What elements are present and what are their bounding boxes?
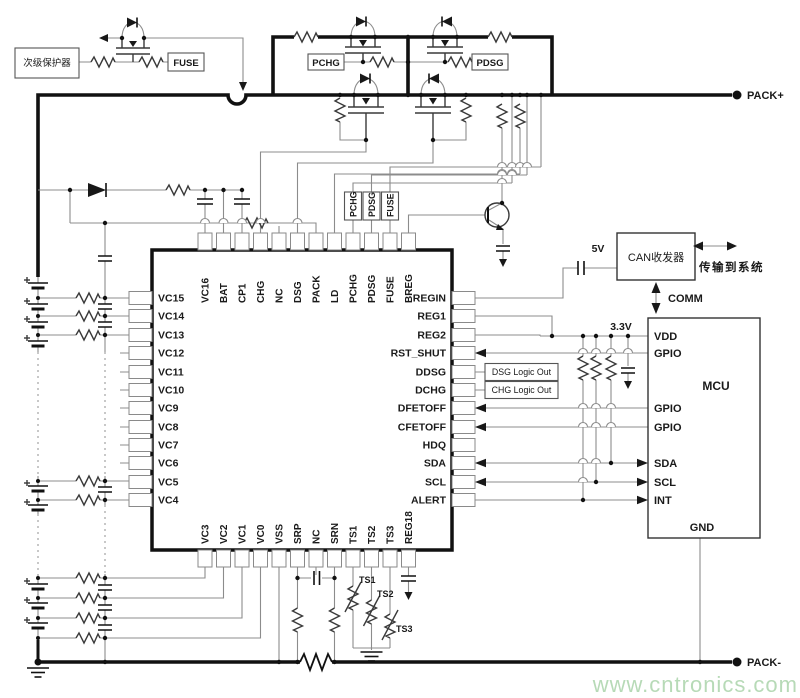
mcu-pin-sda: SDA [654, 458, 677, 470]
pack-negative-rail [38, 640, 732, 670]
pin-label: NC [312, 530, 323, 544]
pin-label: VSS [275, 524, 286, 544]
gate-box-pchg: PCHG [349, 191, 359, 217]
power-labels: 5V 3.3V PACK+ PACK- [592, 90, 784, 669]
ground-icon [27, 668, 49, 677]
pin-label: VC2 [219, 524, 230, 544]
pin-label: PACK [312, 275, 323, 303]
diode-icon [88, 183, 106, 197]
pin-label: VC1 [238, 524, 249, 544]
pin-label: VC11 [158, 367, 184, 379]
pchg-box-label: PCHG [312, 58, 339, 69]
pack-minus-label: PACK- [747, 657, 781, 669]
pin-label: LD [330, 290, 341, 303]
pin-label: VC16 [201, 278, 212, 303]
pdsg-box-label: PDSG [477, 58, 504, 69]
shunt-resistor [300, 654, 332, 670]
pin-label: HDQ [423, 440, 446, 452]
pin-label: REG2 [417, 330, 446, 342]
mcu-pin-scl: SCL [654, 477, 676, 489]
pin-label: SRN [330, 523, 341, 544]
pin-label: SDA [424, 458, 447, 470]
protector-label: 次级保护器 [23, 57, 71, 69]
pin-label: RST_SHUT [391, 348, 447, 360]
pin-label: SRP [293, 523, 304, 544]
pin-label: CFETOFF [398, 422, 447, 434]
mcu-pin-int: INT [654, 495, 672, 507]
ts1-label: TS1 [359, 575, 376, 585]
pin-label: VC10 [158, 385, 184, 397]
bms-schematic: 次级保护器 FUSE PCHG PDSG PCHG PDSG FUSE VC16… [0, 0, 800, 698]
can-label: CAN收发器 [628, 250, 684, 264]
dsg-logic-out-label: DSG Logic Out [492, 367, 552, 377]
thermistor-labels: TS1 TS2 TS3 [359, 575, 413, 634]
fuse-box-label: FUSE [173, 58, 198, 69]
pin-label: TS1 [349, 525, 360, 544]
ground-icon [361, 652, 383, 661]
pin-label: VC13 [158, 330, 184, 342]
mcu-pin-gpio: GPIO [654, 348, 682, 360]
pin-label: VC7 [158, 440, 179, 452]
pin-label: VC15 [158, 293, 184, 305]
logic-out: DSG Logic Out CHG Logic Out [485, 364, 558, 399]
pack-minus-terminal [733, 658, 742, 667]
mcu-name: MCU [702, 379, 729, 393]
pin-label: ALERT [411, 495, 447, 507]
mcu-block: VDD GPIO GPIO GPIO SDA SCL INT MCU GND [648, 318, 760, 538]
ts2-label: TS2 [377, 589, 394, 599]
pin-label: VC6 [158, 458, 179, 470]
pack-plus-label: PACK+ [747, 90, 784, 102]
pin-label: VC0 [256, 524, 267, 544]
secondary-protector: 次级保护器 FUSE [15, 48, 204, 78]
pin-label: TS3 [386, 525, 397, 544]
chg-logic-out-label: CHG Logic Out [492, 385, 552, 395]
fet-network [88, 17, 510, 268]
pin-label: PDSG [367, 274, 378, 303]
pin-label: FUSE [386, 276, 397, 303]
pin-label: VC14 [158, 311, 184, 323]
pin-label: VC4 [158, 495, 179, 507]
mcu-pin-vdd: VDD [654, 331, 677, 343]
rail-5v-label: 5V [592, 243, 605, 255]
pin-label: REGIN [413, 293, 446, 305]
pin-label: VC12 [158, 348, 184, 360]
pin-label: REG18 [404, 511, 415, 544]
gate-box-fuse: FUSE [386, 193, 396, 217]
gate-box-pdsg: PDSG [367, 192, 377, 217]
pin-label: SCL [425, 477, 447, 489]
ts3-label: TS3 [396, 624, 413, 634]
pin-label: VC3 [201, 524, 212, 544]
schematic-canvas: 次级保护器 FUSE PCHG PDSG PCHG PDSG FUSE VC16… [0, 0, 800, 698]
pin-label: DFETOFF [398, 403, 447, 415]
pack-plus-terminal [733, 91, 742, 100]
pin-label: TS2 [367, 525, 378, 544]
pin-label: PCHG [349, 274, 360, 303]
mcu-pin-gpio: GPIO [654, 422, 682, 434]
pin-label: BAT [219, 283, 230, 303]
watermark: www.cntronics.com [592, 672, 798, 697]
pin-label: CHG [256, 281, 267, 303]
to-system-label: 传输到系统 [698, 260, 764, 274]
mcu-gnd: GND [690, 522, 715, 534]
afe-ic: VC16 BAT CP1 CHG NC DSG PACK LD PCHG PDS… [129, 233, 475, 567]
pin-label: DCHG [415, 385, 446, 397]
comm-label: COMM [668, 293, 703, 305]
pin-label: VC5 [158, 477, 179, 489]
gate-drive-boxes: PCHG PDSG FUSE [345, 191, 399, 220]
can-block: CAN收发器 传输到系统 COMM [617, 233, 764, 314]
pin-label: NC [275, 289, 286, 303]
pin-label: DDSG [416, 367, 446, 379]
pin-label: CP1 [238, 283, 249, 303]
pin-label: VC9 [158, 403, 179, 415]
pin-label: VC8 [158, 422, 179, 434]
body-diode-icon [127, 18, 137, 28]
rail-3v3-label: 3.3V [610, 321, 632, 333]
pin-label: REG1 [417, 311, 446, 323]
pin-label: DSG [293, 281, 304, 303]
mcu-pin-gpio: GPIO [654, 403, 682, 415]
